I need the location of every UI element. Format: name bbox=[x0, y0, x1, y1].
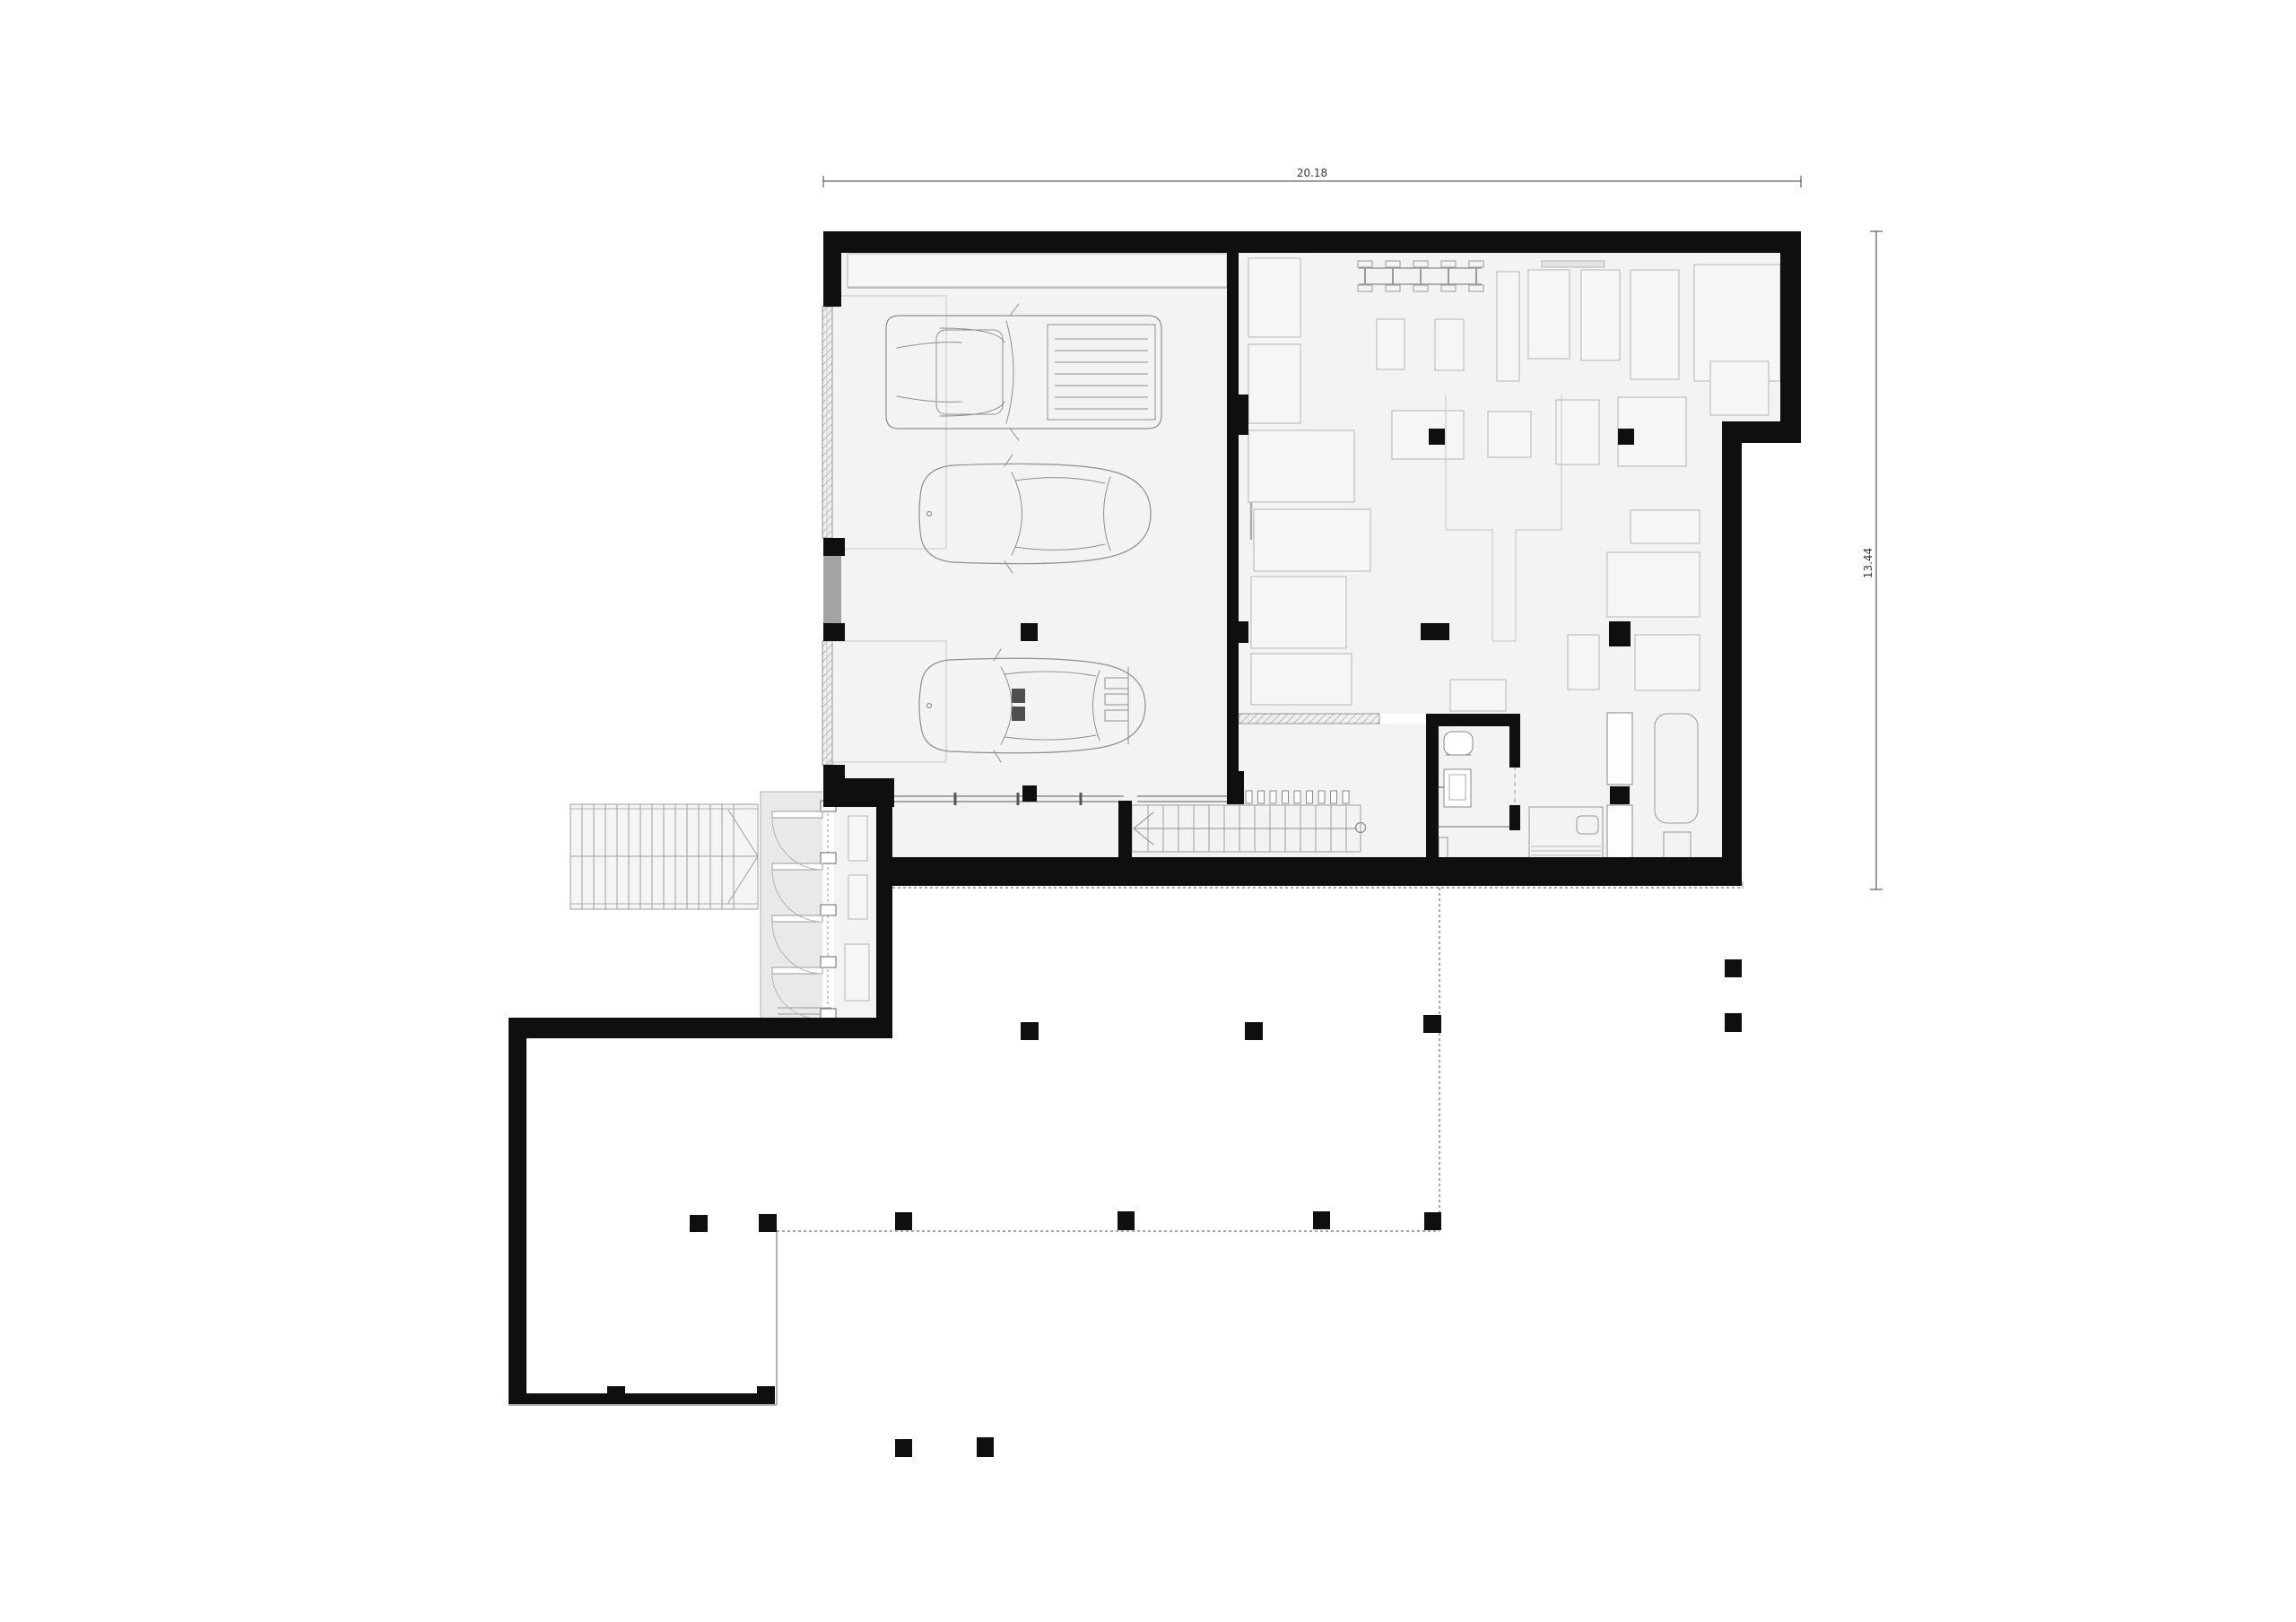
structural-column bbox=[1424, 1212, 1441, 1230]
porch-floor bbox=[761, 792, 822, 1019]
vestibule-locker bbox=[845, 944, 869, 1001]
cabinet-row bbox=[848, 254, 1227, 287]
workbench-cap bbox=[1413, 285, 1428, 291]
wall-hall-hatch bbox=[1239, 714, 1379, 724]
structural-column bbox=[1725, 959, 1742, 977]
storage-item bbox=[1631, 510, 1700, 543]
workbench-cap bbox=[1358, 285, 1372, 291]
stair-baluster bbox=[1343, 791, 1349, 803]
storage-item bbox=[1435, 319, 1464, 370]
wall-west-pier bbox=[823, 623, 845, 641]
stair-baluster bbox=[1283, 791, 1289, 803]
storage-item bbox=[1392, 411, 1464, 459]
stair-baluster bbox=[1258, 791, 1265, 803]
workbench-cap bbox=[1413, 261, 1428, 267]
vestibule-locker bbox=[848, 816, 867, 861]
garage-floor bbox=[832, 253, 1227, 802]
storage-item bbox=[1710, 361, 1769, 415]
storage-item bbox=[1497, 272, 1519, 381]
door-leaf bbox=[772, 811, 822, 818]
structural-column bbox=[1022, 785, 1037, 802]
wall-patio-west bbox=[509, 1018, 526, 1404]
structural-column bbox=[1118, 1211, 1135, 1230]
wall-patio-north bbox=[509, 1018, 892, 1038]
wall-east-lower bbox=[1722, 443, 1742, 886]
storage-item bbox=[1581, 270, 1620, 360]
shelf-unit bbox=[1248, 430, 1354, 502]
vestibule-locker bbox=[848, 875, 867, 919]
structural-column bbox=[1245, 1022, 1263, 1040]
stair-baluster bbox=[1318, 791, 1325, 803]
wall-shelf bbox=[1542, 261, 1605, 267]
structural-column bbox=[690, 1215, 708, 1232]
toilet bbox=[1444, 732, 1473, 755]
duct bbox=[1607, 805, 1632, 866]
structural-column bbox=[1429, 429, 1445, 445]
workbench-cap bbox=[1358, 261, 1372, 267]
structural-column bbox=[1421, 623, 1449, 640]
structural-column bbox=[1618, 429, 1634, 445]
duct bbox=[1607, 713, 1632, 785]
storage-item bbox=[1568, 635, 1599, 690]
stair-baluster bbox=[1246, 791, 1252, 803]
storage-item bbox=[1635, 635, 1700, 690]
mullion-post bbox=[821, 957, 836, 967]
dim-top-label: 20.18 bbox=[1297, 167, 1327, 179]
storage-item bbox=[1631, 270, 1679, 379]
duct-column bbox=[1610, 786, 1630, 804]
structural-column bbox=[759, 1214, 777, 1232]
dim-right-label: 13.44 bbox=[1862, 548, 1874, 578]
wall-divider-end bbox=[1227, 771, 1244, 804]
structural-column bbox=[1609, 621, 1631, 646]
structural-column bbox=[1021, 1022, 1039, 1040]
sports-car-seat bbox=[1012, 707, 1025, 721]
shelf-unit bbox=[1248, 258, 1300, 337]
window-west bbox=[823, 556, 841, 623]
workbench-cap bbox=[1441, 285, 1456, 291]
floor-plan: 20.1813.44 bbox=[0, 0, 2296, 1622]
sports-car-seat bbox=[1012, 689, 1025, 703]
stair-baluster bbox=[1331, 791, 1337, 803]
structural-column bbox=[1725, 1013, 1742, 1032]
shelf-unit bbox=[1251, 577, 1346, 648]
workbench-cap bbox=[1469, 285, 1483, 291]
structural-column bbox=[895, 1212, 912, 1230]
structural-column bbox=[757, 1386, 775, 1404]
wall-garage-divider bbox=[1227, 253, 1239, 804]
wall-stair-stub bbox=[1118, 801, 1132, 863]
mullion-post bbox=[821, 905, 836, 915]
wall-north bbox=[823, 231, 1801, 253]
wall-east-step bbox=[1722, 421, 1801, 443]
floor-plan-page: 20.1813.44 bbox=[0, 0, 2296, 1622]
shelf-unit bbox=[1254, 509, 1370, 571]
stair-baluster bbox=[1270, 791, 1276, 803]
wall-south bbox=[892, 857, 1742, 886]
wall-bath-west bbox=[1426, 714, 1439, 866]
structural-column bbox=[1313, 1211, 1330, 1229]
structural-column bbox=[895, 1439, 912, 1457]
workbench-cap bbox=[1469, 261, 1483, 267]
wall-bath-north bbox=[1426, 714, 1520, 726]
wall-west-pier bbox=[823, 538, 845, 556]
wall-bath-east bbox=[1509, 805, 1520, 830]
wall-vestibule-east bbox=[876, 778, 892, 1038]
shelf-unit bbox=[1248, 344, 1300, 423]
workbench-cap bbox=[1386, 285, 1400, 291]
mullion-post bbox=[821, 853, 836, 863]
wall-west-lower bbox=[823, 765, 845, 778]
storage-item bbox=[1607, 552, 1700, 617]
stair-baluster bbox=[1307, 791, 1313, 803]
stair-baluster bbox=[1294, 791, 1300, 803]
structural-column bbox=[1423, 1015, 1441, 1033]
wall-divider-pier bbox=[1239, 395, 1248, 435]
storage-item bbox=[1556, 400, 1599, 464]
storage-item bbox=[1488, 412, 1531, 457]
structural-column bbox=[977, 1437, 994, 1457]
workbench-cap bbox=[1441, 261, 1456, 267]
structural-column bbox=[607, 1386, 625, 1404]
wall-bath-east bbox=[1509, 726, 1520, 768]
storage-item bbox=[1450, 680, 1506, 711]
storage-item bbox=[1528, 270, 1570, 359]
shelf-unit bbox=[1251, 654, 1352, 705]
structural-column bbox=[1021, 623, 1038, 641]
workbench-cap bbox=[1386, 261, 1400, 267]
wall-divider-pier bbox=[1239, 621, 1248, 643]
wall-east-upper bbox=[1780, 253, 1801, 421]
storage-item bbox=[1377, 319, 1405, 369]
wall-patio-south bbox=[526, 1393, 775, 1404]
wall-northwest-corner bbox=[823, 253, 841, 307]
